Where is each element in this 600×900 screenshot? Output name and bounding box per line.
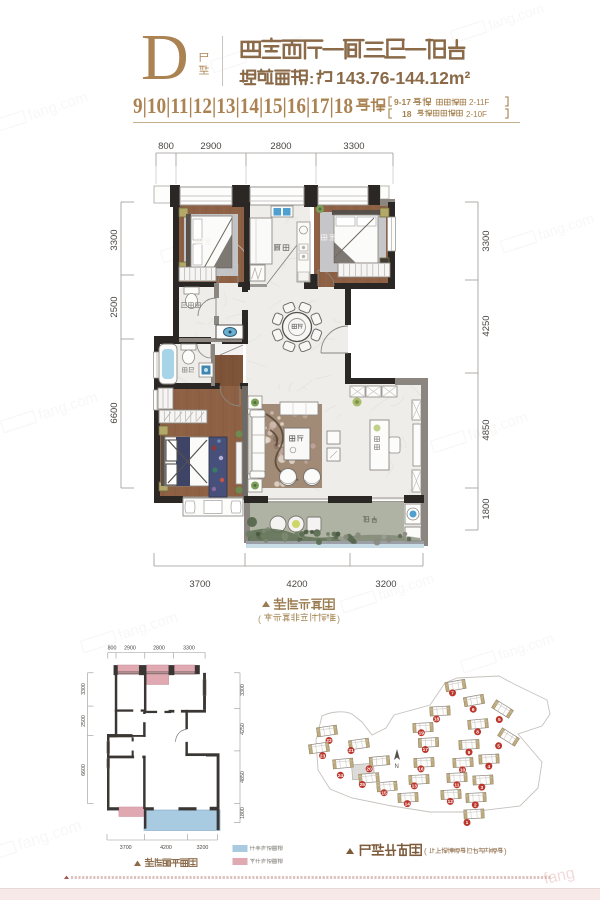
svg-text:800: 800 — [108, 646, 117, 652]
svg-text:4850: 4850 — [481, 419, 492, 440]
svg-text:25: 25 — [360, 782, 366, 788]
svg-text:4250: 4250 — [481, 315, 492, 336]
svg-text:143.76-144.12m²: 143.76-144.12m² — [336, 68, 470, 88]
svg-text:9: 9 — [468, 750, 471, 756]
svg-text:7: 7 — [451, 691, 454, 697]
svg-text:1800: 1800 — [240, 807, 246, 819]
svg-text:6: 6 — [472, 707, 475, 713]
svg-text:3700: 3700 — [189, 579, 210, 590]
svg-text:2-10F: 2-10F — [466, 110, 487, 119]
svg-text:800: 800 — [158, 141, 174, 152]
svg-text:9-17: 9-17 — [394, 97, 411, 107]
svg-text:4250: 4250 — [240, 723, 246, 735]
svg-text:N: N — [395, 764, 399, 770]
svg-text:5: 5 — [497, 744, 500, 750]
svg-text:): ) — [504, 847, 507, 856]
svg-text:2: 2 — [474, 803, 477, 809]
svg-text:8: 8 — [476, 730, 479, 736]
svg-text:2900: 2900 — [200, 141, 221, 152]
svg-text:12: 12 — [448, 799, 454, 805]
svg-text:2900: 2900 — [124, 646, 136, 652]
svg-text:1800: 1800 — [481, 498, 492, 519]
svg-text:3: 3 — [480, 785, 483, 791]
svg-text:19: 19 — [419, 730, 425, 736]
svg-text:(: ( — [258, 614, 261, 624]
svg-text:6600: 6600 — [81, 764, 87, 776]
svg-text:2500: 2500 — [81, 715, 87, 727]
svg-text:21: 21 — [348, 748, 354, 754]
svg-text:2800: 2800 — [153, 646, 165, 652]
svg-text:3300: 3300 — [481, 230, 492, 251]
svg-text:1: 1 — [466, 820, 469, 826]
svg-text:13: 13 — [412, 784, 418, 790]
svg-text:5: 5 — [498, 717, 501, 723]
svg-text:2800: 2800 — [270, 141, 291, 152]
svg-text:(: ( — [424, 847, 427, 856]
svg-text:4: 4 — [487, 764, 490, 770]
svg-text:D: D — [141, 21, 189, 94]
svg-text:20: 20 — [366, 767, 372, 773]
svg-text:2500: 2500 — [109, 296, 120, 317]
svg-text:3200: 3200 — [375, 579, 396, 590]
svg-text:18: 18 — [402, 109, 412, 119]
svg-text:16: 16 — [418, 767, 424, 773]
svg-text:): ) — [337, 614, 340, 624]
svg-text:6600: 6600 — [109, 402, 120, 423]
svg-text::: : — [309, 71, 314, 88]
svg-text:4200: 4200 — [160, 845, 172, 851]
svg-text:3200: 3200 — [197, 845, 209, 851]
svg-text:3300: 3300 — [240, 684, 246, 696]
svg-text:3300: 3300 — [109, 229, 120, 250]
svg-text:15: 15 — [381, 790, 387, 796]
svg-text:4850: 4850 — [240, 771, 246, 783]
svg-text:18: 18 — [434, 717, 440, 723]
svg-text:3700: 3700 — [120, 845, 132, 851]
svg-text:3300: 3300 — [343, 141, 364, 152]
svg-text:9|10|11|12|13|14|15|16|17|18: 9|10|11|12|13|14|15|16|17|18 — [133, 93, 353, 118]
svg-text:23: 23 — [320, 753, 326, 759]
svg-text:3300: 3300 — [183, 646, 195, 652]
svg-text:24: 24 — [338, 773, 344, 779]
svg-text:2-11F: 2-11F — [469, 98, 489, 107]
svg-text:4200: 4200 — [286, 579, 307, 590]
svg-text:14: 14 — [405, 801, 411, 807]
svg-text:11: 11 — [454, 783, 459, 789]
svg-text:3300: 3300 — [81, 683, 87, 695]
svg-text:17: 17 — [423, 747, 429, 753]
